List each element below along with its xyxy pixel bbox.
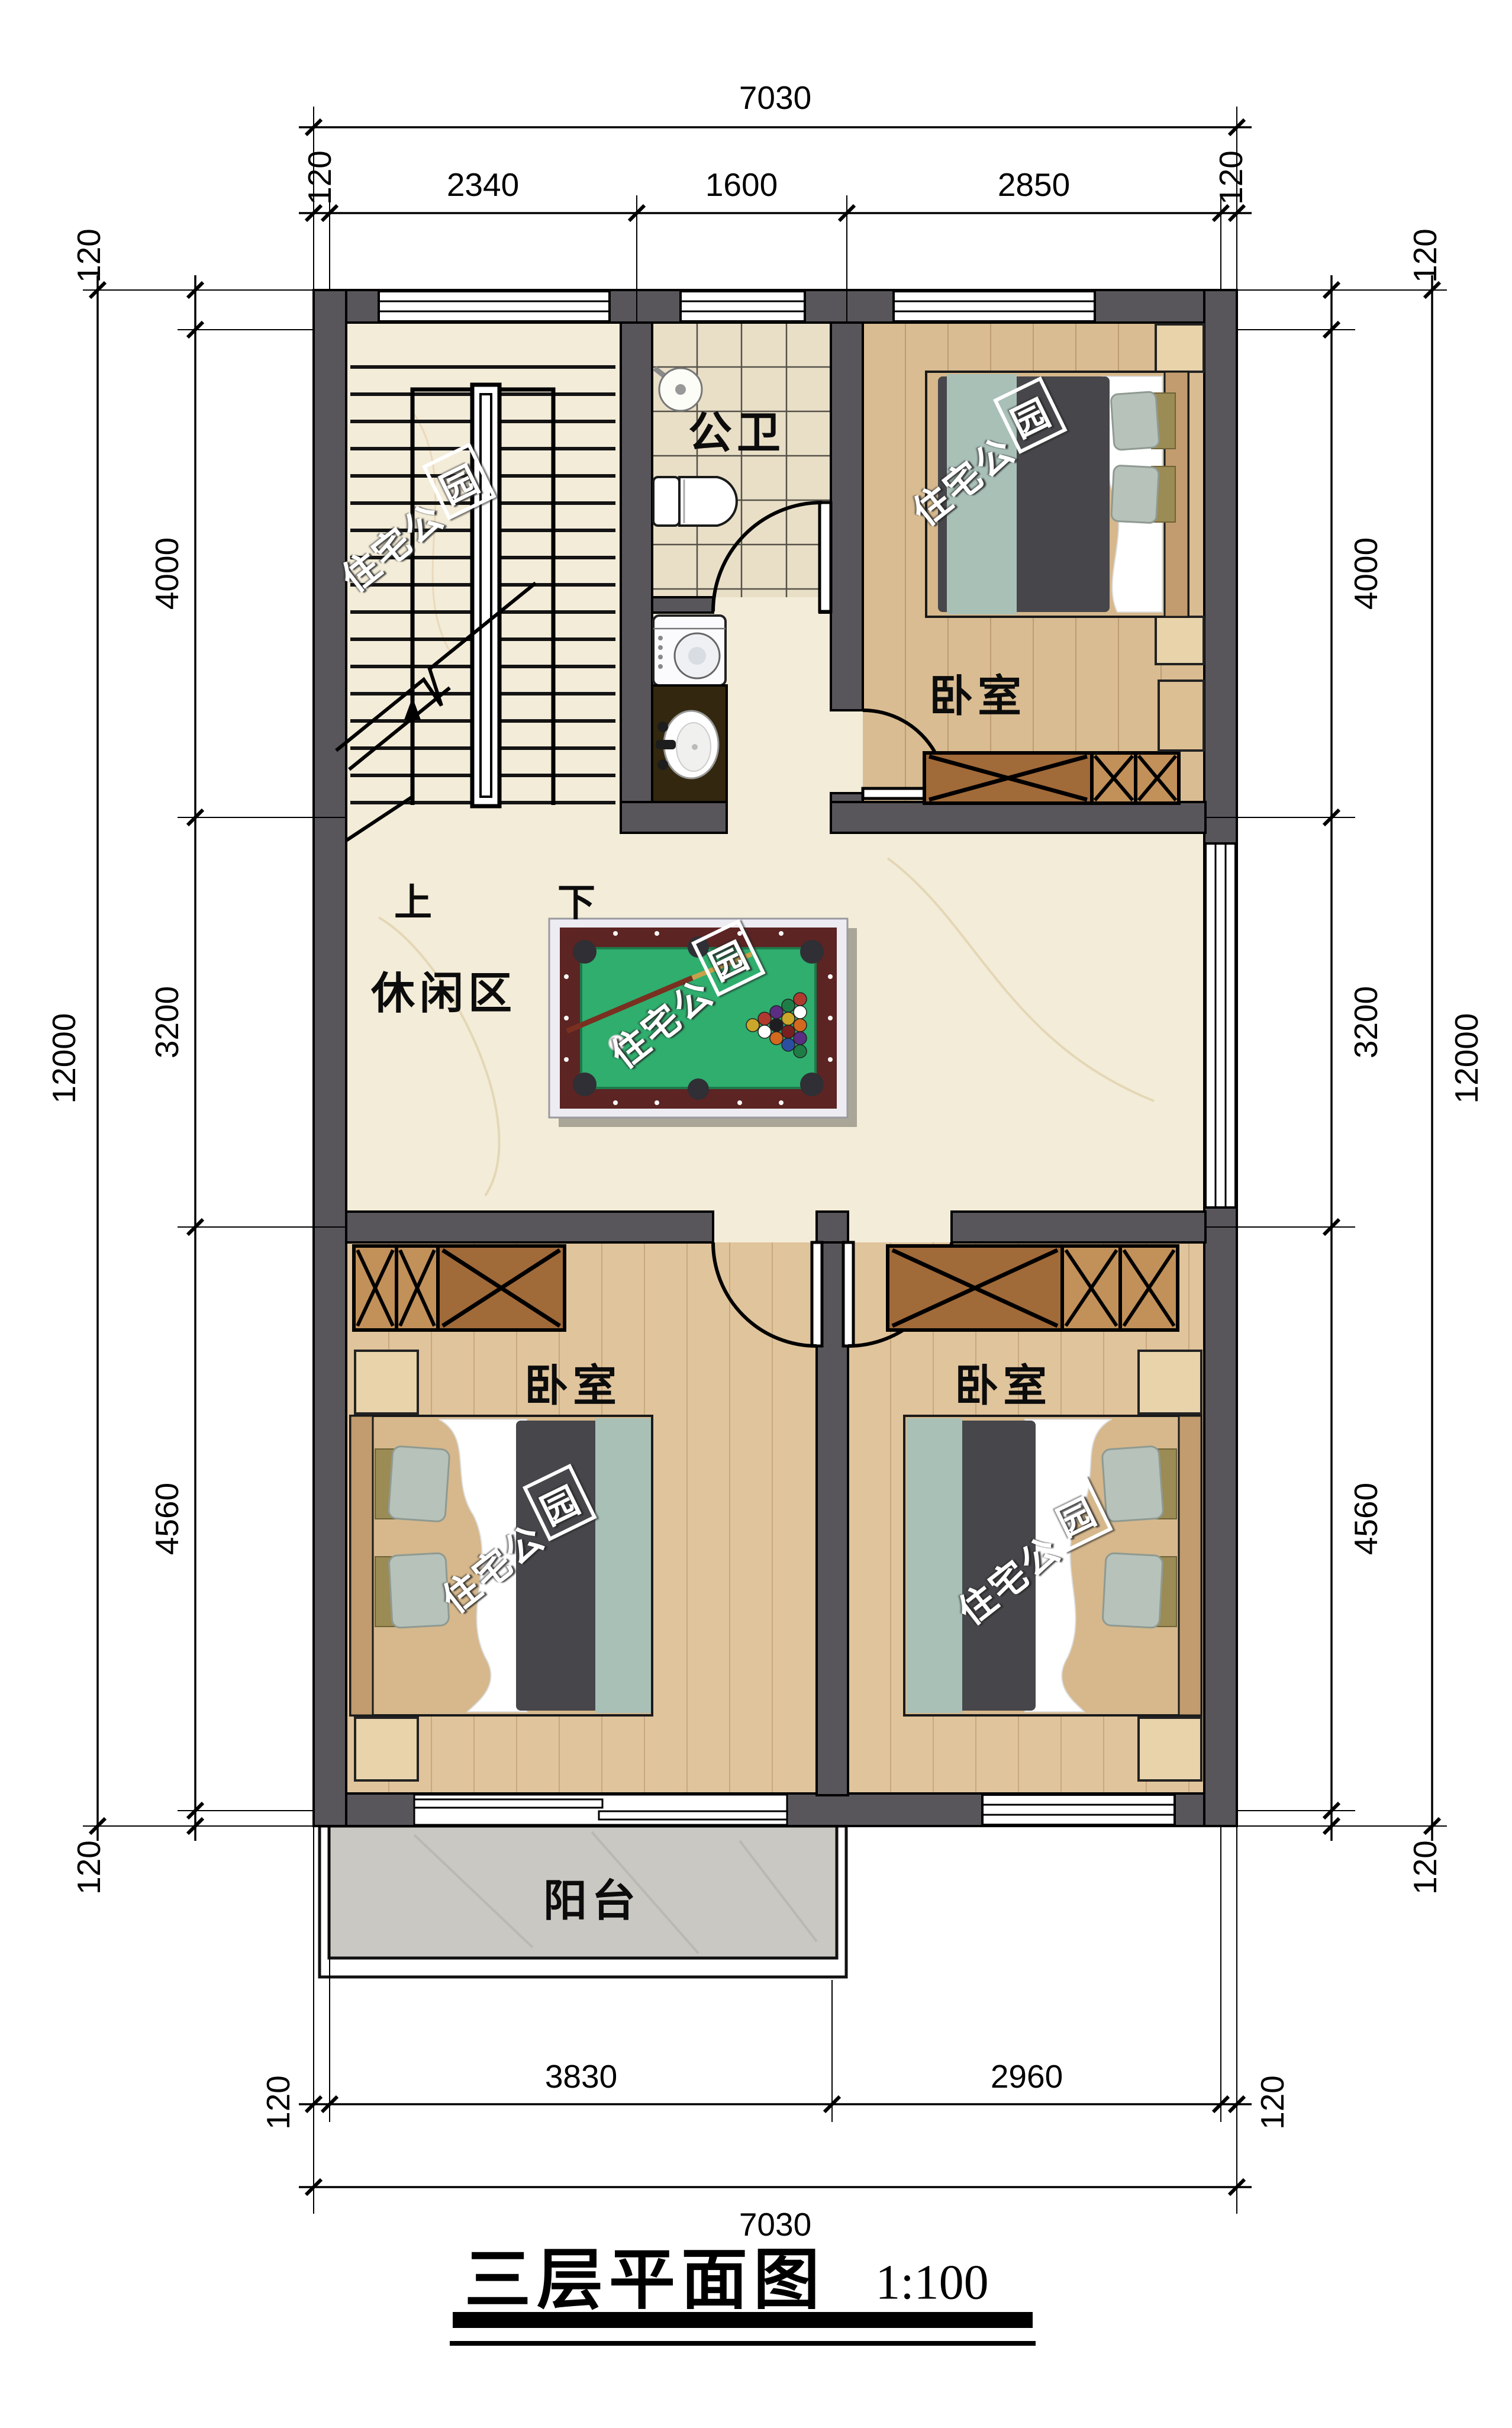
window-right-leisure (1205, 843, 1236, 1207)
label-bedroom-top-right: 卧室 (929, 661, 1026, 724)
dim-bottom-seg2: 2960 (991, 2057, 1063, 2095)
wardrobe-bottom-left-bedroom (354, 1246, 565, 1330)
nightstand (1156, 324, 1204, 372)
dim-top-seg0: 120 (301, 150, 338, 205)
dim-bottom-seg1: 3830 (545, 2057, 617, 2095)
dim-right-seg0: 120 (1406, 228, 1444, 283)
dim-right-seg4: 120 (1406, 1840, 1444, 1895)
window-top-bedroom (894, 291, 1095, 321)
floor-plan-page: 公卫 卧室 休闲区 卧室 卧室 阳台 上 下 住宅公园 住宅公园 住宅公园 住宅… (0, 0, 1512, 2428)
drawing-scale: 1:100 (875, 2254, 988, 2311)
window-top-stair (379, 291, 610, 321)
wardrobe-top-right-bedroom (924, 753, 1179, 803)
title-underline-thick (453, 2312, 1033, 2328)
nightstand (355, 1351, 418, 1413)
dim-right-total: 12000 (1447, 1013, 1485, 1104)
cabinet (1159, 681, 1204, 751)
dim-right-seg1: 4000 (1347, 537, 1385, 610)
dim-left-seg4: 120 (70, 1840, 108, 1895)
nightstand (355, 1718, 418, 1780)
dim-right-seg2: 3200 (1347, 986, 1385, 1058)
washing-machine-icon (653, 616, 726, 685)
laundry-niche (652, 616, 727, 802)
vanity-sink (652, 685, 727, 802)
dim-right-seg3: 4560 (1347, 1483, 1385, 1555)
dim-top-seg1: 2340 (447, 166, 519, 204)
dim-top-seg2: 1600 (705, 166, 778, 204)
label-stairs-down: 下 (557, 872, 600, 927)
dim-top-seg3: 2850 (998, 166, 1070, 204)
dim-left-total: 12000 (45, 1013, 83, 1104)
label-leisure: 休闲区 (371, 958, 517, 1022)
dim-left-seg1: 4000 (148, 537, 186, 610)
dim-left-seg3: 4560 (148, 1483, 186, 1555)
nightstand (1139, 1718, 1201, 1780)
dim-left-seg2: 3200 (148, 986, 186, 1058)
label-bedroom-bottom-right: 卧室 (955, 1351, 1052, 1414)
label-bedroom-bottom-left: 卧室 (524, 1351, 621, 1414)
nightstand (1156, 617, 1204, 664)
title-underline-thin (450, 2341, 1036, 2346)
drawing-title: 三层平面图 (465, 2226, 826, 2322)
wardrobe-bottom-right-bedroom (888, 1246, 1178, 1330)
dim-bottom-seg0: 120 (259, 2075, 297, 2130)
dim-top-total: 7030 (739, 79, 811, 117)
dim-left-seg0: 120 (70, 228, 108, 283)
label-bathroom: 公卫 (688, 398, 785, 461)
toilet-icon (653, 477, 737, 526)
label-balcony: 阳台 (543, 1866, 640, 1929)
dim-top-seg4: 120 (1212, 150, 1250, 205)
floor-plan-drawing (0, 0, 1512, 2428)
balcony-sliding-door (414, 1795, 787, 1825)
label-stairs-up: 上 (394, 872, 437, 927)
window-bottom-bedroom (982, 1795, 1175, 1825)
stair-railing (472, 385, 499, 806)
window-top-bathroom (681, 291, 805, 321)
nightstand (1139, 1351, 1201, 1413)
dim-bottom-seg3: 120 (1253, 2075, 1291, 2130)
